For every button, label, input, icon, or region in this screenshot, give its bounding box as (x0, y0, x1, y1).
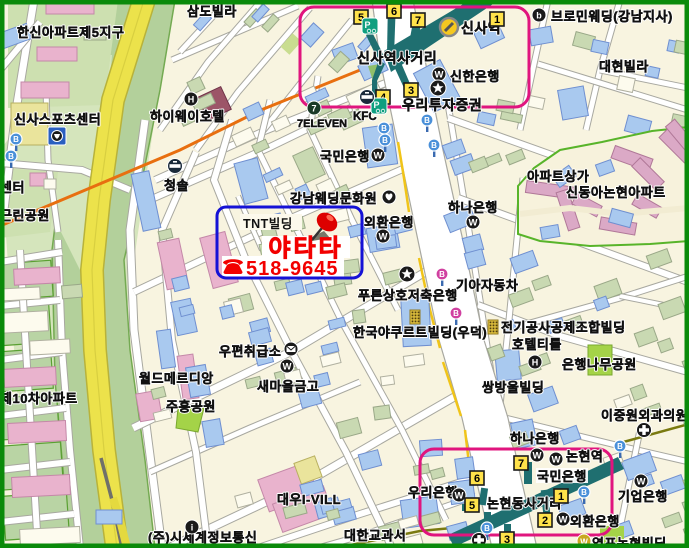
svg-text:H: H (188, 95, 195, 105)
svg-text:강남웨딩문화원: 강남웨딩문화원 (290, 191, 377, 206)
svg-text:B: B (484, 524, 490, 533)
svg-text:B: B (453, 309, 459, 318)
svg-text:브로민웨딩(강남지사): 브로민웨딩(강남지사) (551, 9, 673, 24)
svg-text:호텔티롤: 호텔티롤 (512, 337, 562, 352)
svg-text:B: B (617, 442, 623, 451)
svg-text:B: B (381, 124, 387, 133)
svg-text:7: 7 (518, 458, 524, 470)
svg-text:하나은행: 하나은행 (448, 200, 498, 215)
svg-text:청솔: 청솔 (164, 178, 189, 193)
svg-text:W: W (435, 70, 444, 81)
svg-text:6: 6 (391, 6, 397, 18)
svg-text:신동아논현아파트: 신동아논현아파트 (566, 185, 666, 200)
svg-text:i: i (191, 523, 194, 533)
svg-text:우리투자증권: 우리투자증권 (402, 97, 482, 113)
svg-text:대현빌라: 대현빌라 (599, 59, 649, 74)
svg-text:b: b (536, 11, 542, 21)
svg-text:푸른상호저축은행: 푸른상호저축은행 (358, 288, 458, 303)
svg-text:1: 1 (558, 491, 564, 503)
svg-text:제10차아파트: 제10차아파트 (0, 391, 78, 406)
svg-text:B: B (581, 488, 587, 497)
svg-text:대우I-VILL: 대우I-VILL (277, 492, 341, 507)
svg-text:3: 3 (408, 85, 414, 97)
svg-text:근린공원: 근린공원 (0, 208, 50, 223)
svg-text:1: 1 (494, 14, 500, 26)
svg-text:7: 7 (311, 104, 316, 114)
svg-text:B: B (8, 152, 14, 161)
svg-text:H: H (532, 358, 539, 368)
svg-text:W: W (637, 477, 646, 488)
svg-text:주흥공원: 주흥공원 (166, 399, 216, 414)
svg-text:6: 6 (474, 473, 480, 485)
svg-text:국민은행: 국민은행 (537, 469, 587, 484)
svg-text:국민은행: 국민은행 (320, 149, 370, 164)
svg-text:P: P (364, 20, 370, 30)
svg-text:W: W (469, 218, 478, 229)
svg-text:이중원외과의원: 이중원외과의원 (601, 408, 688, 423)
svg-text:새마을금고: 새마을금고 (257, 379, 319, 394)
svg-text:외환은행: 외환은행 (570, 514, 620, 529)
svg-text:TNT빌딩: TNT빌딩 (243, 216, 293, 231)
svg-text:B: B (431, 141, 437, 150)
svg-text:우편취급소: 우편취급소 (219, 344, 281, 359)
svg-text:7: 7 (415, 15, 421, 27)
svg-text:하이웨이호텔: 하이웨이호텔 (150, 109, 225, 124)
svg-text:은행나무공원: 은행나무공원 (562, 357, 637, 372)
svg-text:신한은행: 신한은행 (450, 69, 500, 84)
svg-text:W: W (374, 151, 383, 162)
svg-text:신사스포츠센터: 신사스포츠센터 (14, 112, 101, 127)
svg-text:한신아파트제5지구: 한신아파트제5지구 (17, 25, 124, 40)
svg-text:7ELEVEN: 7ELEVEN (297, 118, 347, 130)
svg-text:W: W (533, 451, 542, 462)
svg-text:아파트상가: 아파트상가 (527, 169, 589, 184)
svg-text:W: W (559, 515, 568, 526)
svg-text:5: 5 (469, 500, 475, 512)
svg-text:B: B (424, 116, 430, 125)
svg-text:518-9645: 518-9645 (246, 258, 339, 280)
svg-text:B: B (382, 136, 388, 145)
svg-text:쌍방울빌딩: 쌍방울빌딩 (482, 380, 544, 395)
svg-text:외환은행: 외환은행 (364, 215, 414, 230)
svg-text:기업은행: 기업은행 (618, 489, 668, 504)
svg-text:B: B (439, 270, 445, 279)
svg-text:기아자동차: 기아자동차 (456, 278, 518, 293)
svg-text:B: B (13, 135, 19, 144)
svg-text:전기공사공제조합빌딩: 전기공사공제조합빌딩 (501, 320, 626, 335)
svg-text:2: 2 (542, 515, 548, 527)
svg-text:삼도빌라: 삼도빌라 (187, 4, 237, 19)
svg-text:W: W (455, 491, 464, 502)
svg-text:W: W (379, 232, 388, 243)
svg-text:(주)시세계정보통신: (주)시세계정보통신 (148, 530, 257, 545)
svg-text:P: P (373, 100, 379, 110)
svg-text:월드메르디앙: 월드메르디앙 (139, 371, 214, 386)
svg-text:하나은행: 하나은행 (510, 431, 560, 446)
svg-text:논현동사거리: 논현동사거리 (487, 496, 562, 511)
svg-text:우리은행: 우리은행 (408, 485, 458, 500)
svg-text:W: W (552, 455, 561, 466)
svg-text:신사역사거리: 신사역사거리 (357, 50, 437, 66)
svg-text:W: W (283, 362, 292, 373)
svg-text:논현역: 논현역 (566, 449, 603, 464)
svg-text:한국야쿠르트빌딩(우덕): 한국야쿠르트빌딩(우덕) (353, 325, 487, 340)
svg-text:대한교과서: 대한교과서 (344, 528, 406, 543)
